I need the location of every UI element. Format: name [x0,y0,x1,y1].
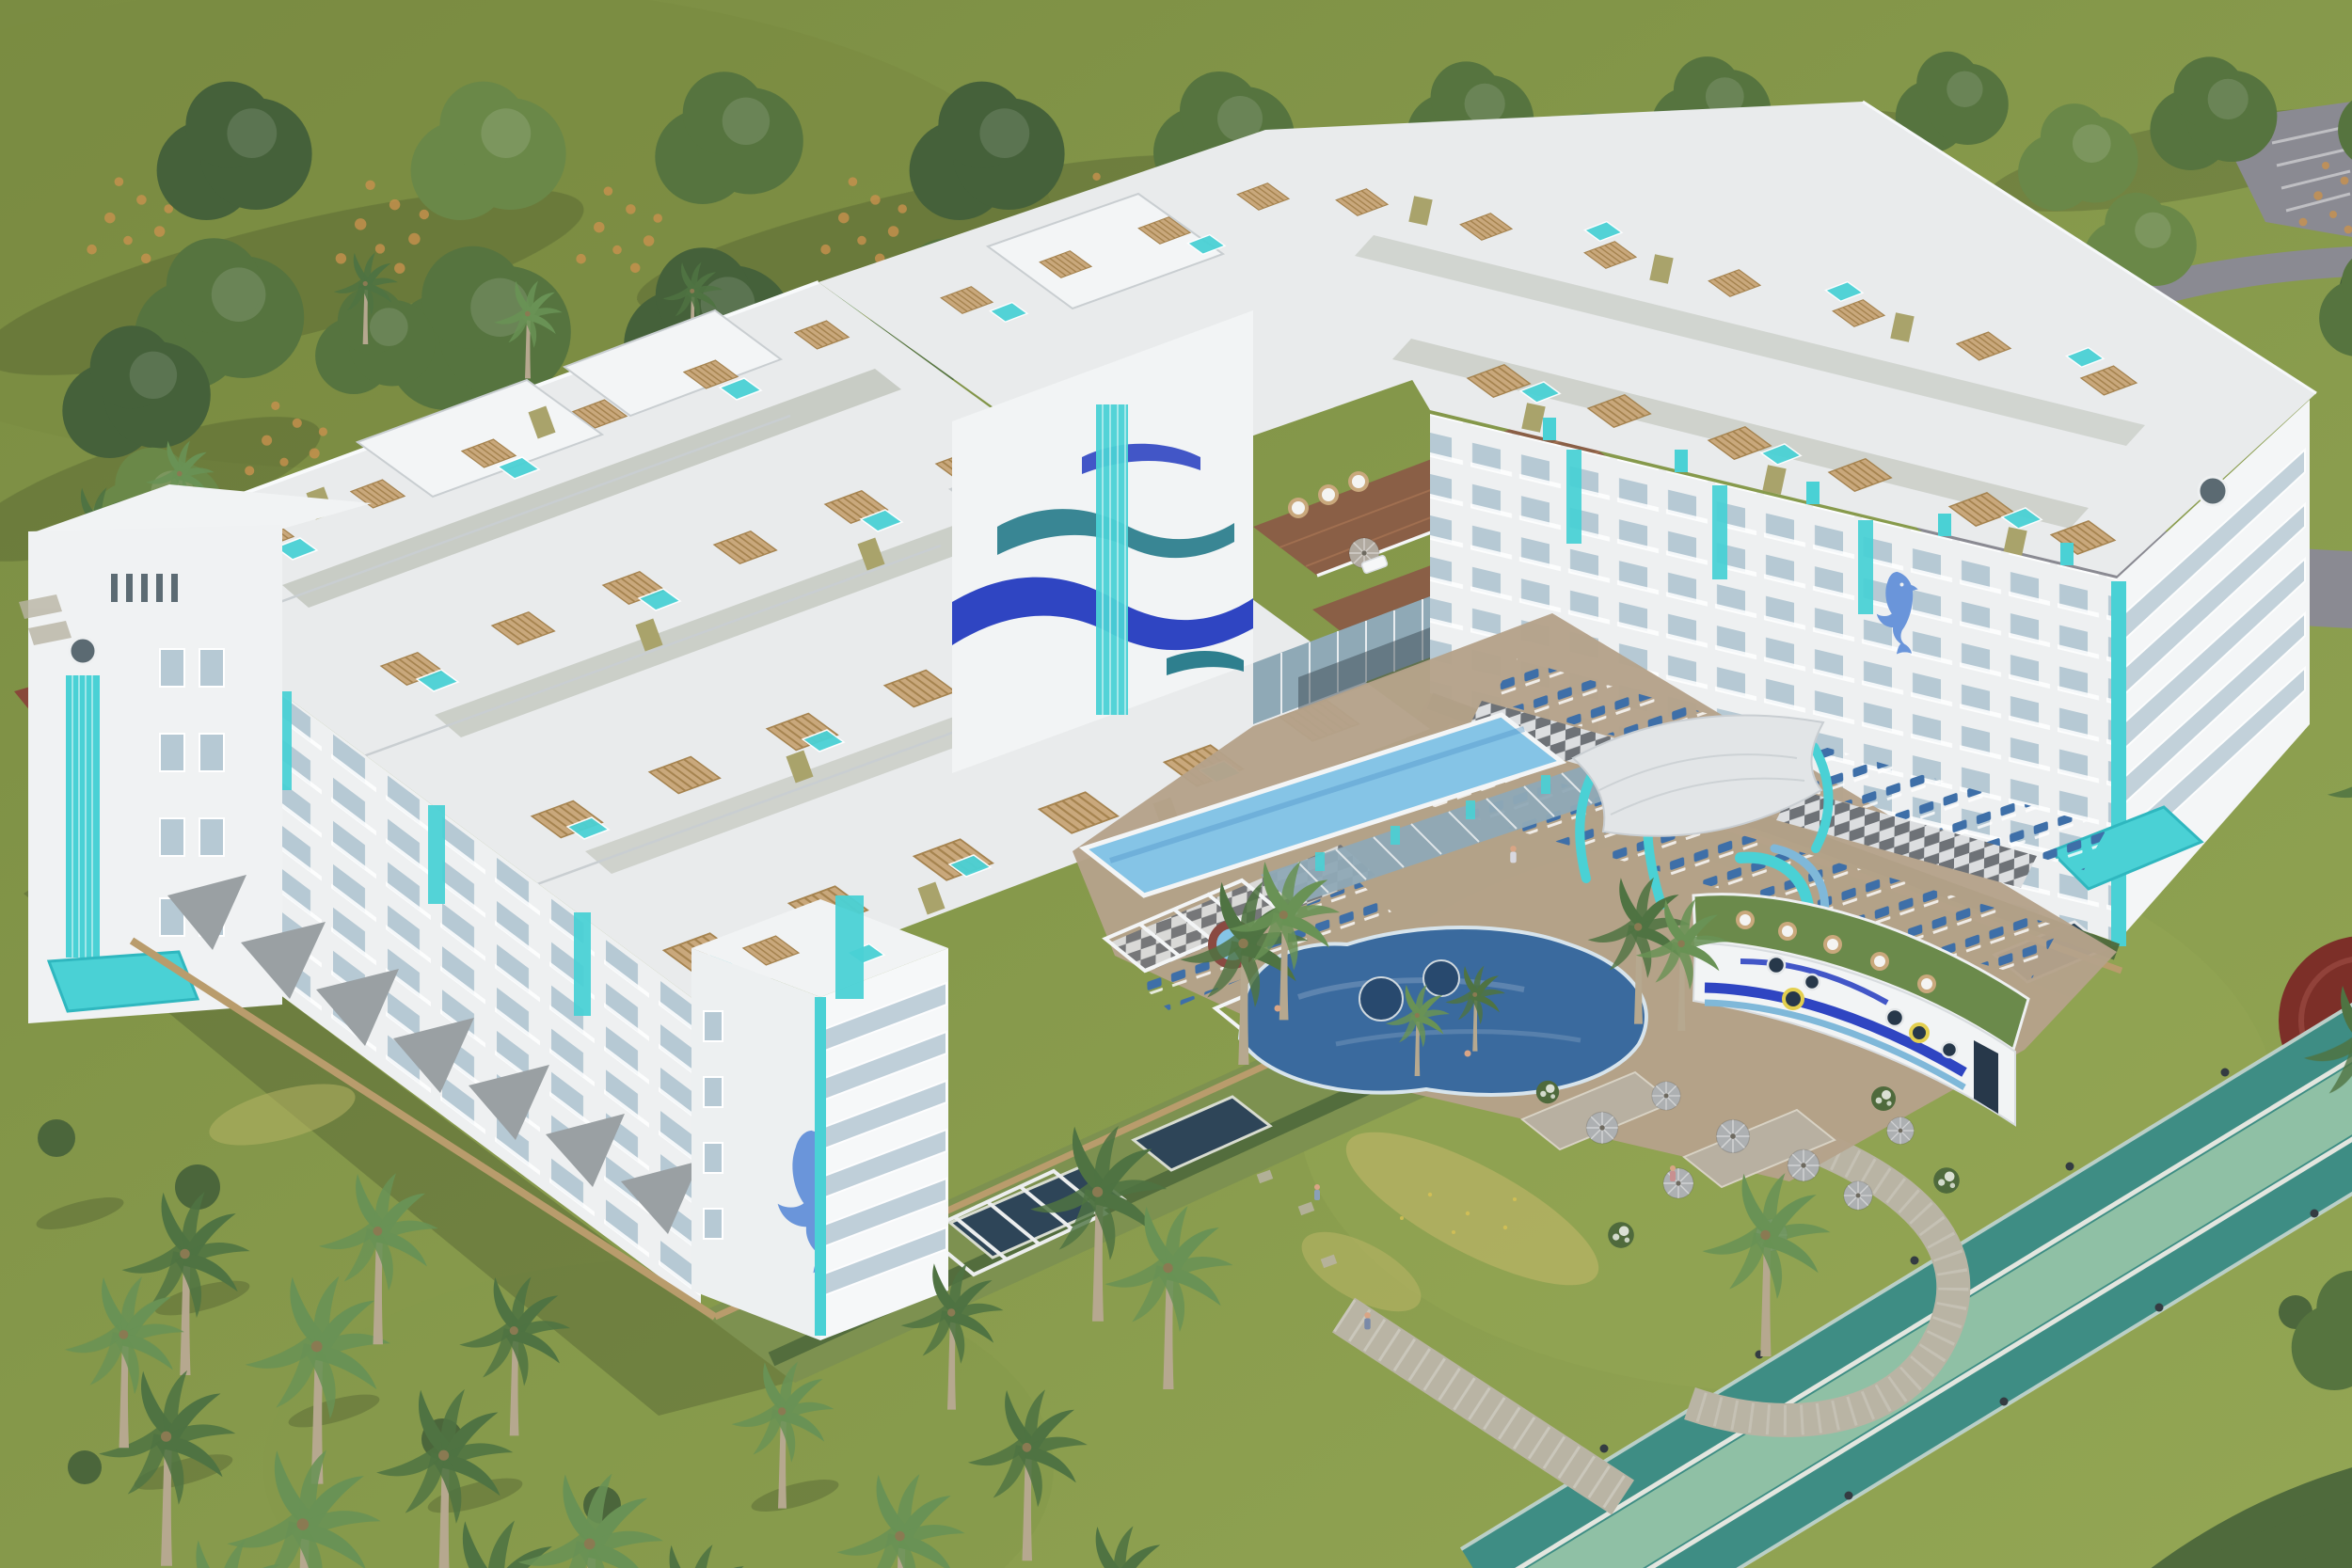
dolphin-tower [691,895,948,1340]
resort-aerial-rendering: Aerial 3D architectural rendering of a w… [0,0,2352,1568]
accent-grille [66,675,100,958]
accent-grille [2111,581,2126,946]
swimmer [1465,1051,1471,1057]
palm-island [1359,977,1403,1021]
person [1670,1165,1676,1181]
scene: Aerial 3D architectural rendering of a w… [0,0,2352,1568]
person [1510,846,1516,863]
accent-grille [835,895,864,999]
person [1364,1312,1370,1329]
person [1314,1184,1320,1200]
palm-island [1423,960,1459,996]
porthole-window [2199,477,2227,505]
porthole-window [70,638,96,664]
accent-grille [815,997,826,1336]
entrance-canopy [49,952,198,1011]
accent-grille [1096,404,1128,715]
swimmer [1275,1006,1281,1012]
